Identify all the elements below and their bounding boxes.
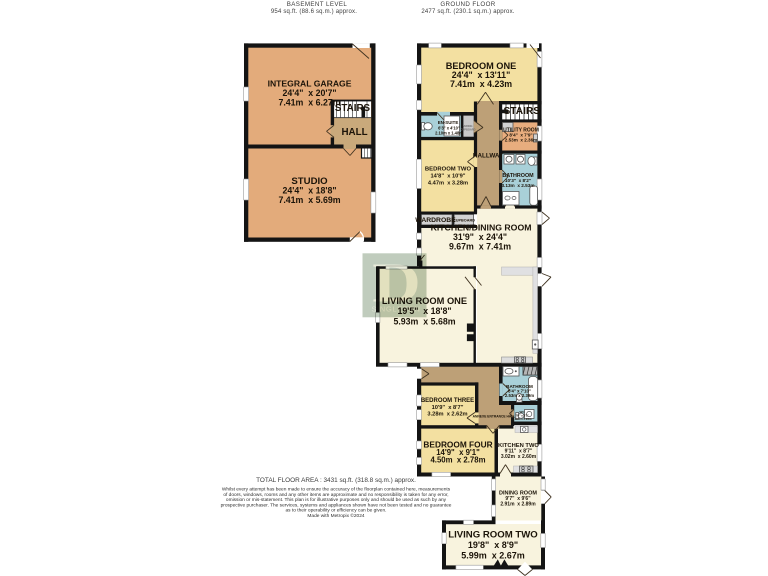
- svg-text:STAIRS: STAIRS: [335, 103, 371, 114]
- svg-text:3.13m x 2.53m: 3.13m x 2.53m: [501, 183, 534, 188]
- svg-text:HALLWAY: HALLWAY: [473, 153, 504, 160]
- svg-text:3.02m x 2.60m: 3.02m x 2.60m: [501, 454, 537, 460]
- svg-text:CUPBOARD: CUPBOARD: [461, 128, 476, 132]
- svg-text:31'9" x 24'4": 31'9" x 24'4": [453, 232, 507, 242]
- svg-text:14'8" x 10'9": 14'8" x 10'9": [431, 173, 466, 179]
- svg-text:STAIRS: STAIRS: [503, 106, 540, 117]
- svg-text:AIRING: AIRING: [463, 124, 472, 128]
- svg-text:19'8" x 8'9": 19'8" x 8'9": [468, 540, 518, 550]
- svg-text:3.28m x 2.62m: 3.28m x 2.62m: [427, 412, 467, 418]
- svg-text:5.99m x 2.67m: 5.99m x 2.67m: [461, 551, 525, 561]
- svg-text:BEDROOM THREE: BEDROOM THREE: [421, 398, 474, 404]
- svg-text:TOTAL FLOOR AREA : 3431 sq.ft.: TOTAL FLOOR AREA : 3431 sq.ft. (318.8 sq…: [256, 477, 416, 484]
- svg-text:10'9" x 8'7": 10'9" x 8'7": [432, 405, 464, 411]
- svg-text:2477 sq.ft. (230.1 sq.m.) appr: 2477 sq.ft. (230.1 sq.m.) approx.: [421, 9, 514, 15]
- svg-text:2.36m x 0.94m: 2.36m x 0.94m: [513, 417, 532, 421]
- svg-text:LIVING ROOM TWO: LIVING ROOM TWO: [448, 530, 538, 541]
- svg-text:Made with Metropix ©2024: Made with Metropix ©2024: [307, 512, 364, 519]
- svg-text:4.50m x 2.78m: 4.50m x 2.78m: [430, 456, 485, 465]
- svg-text:2.53m x 2.36m: 2.53m x 2.36m: [505, 138, 537, 143]
- svg-text:prospective purchaser. The ser: prospective purchaser. The services, sys…: [221, 502, 452, 508]
- svg-text:24'4" x 20'7": 24'4" x 20'7": [282, 88, 336, 98]
- svg-text:SINGLETON: SINGLETON: [371, 305, 420, 314]
- svg-text:7.41m x 6.27m: 7.41m x 6.27m: [278, 98, 340, 108]
- svg-text:HALL: HALL: [341, 127, 367, 138]
- svg-text:7.41m x 5.69m: 7.41m x 5.69m: [278, 195, 340, 205]
- svg-text:BEDROOM TWO: BEDROOM TWO: [425, 167, 472, 173]
- svg-text:24'4" x 18'8": 24'4" x 18'8": [282, 186, 336, 196]
- svg-text:as to their operability or eff: as to their operability or efficiency ca…: [286, 508, 387, 514]
- svg-text:BASEMENT LEVEL: BASEMENT LEVEL: [287, 1, 348, 8]
- svg-text:2.10m x 1.48m: 2.10m x 1.48m: [435, 130, 463, 135]
- svg-text:INTEGRAL GARAGE: INTEGRAL GARAGE: [268, 79, 352, 89]
- svg-text:omission or mis-statement. Thi: omission or mis-statement. This plan is …: [226, 497, 447, 503]
- svg-text:2.91m x 2.89m: 2.91m x 2.89m: [500, 501, 536, 507]
- svg-text:Whilst every attempt has been: Whilst every attempt has been made to en…: [222, 487, 451, 493]
- svg-text:GROUND FLOOR: GROUND FLOOR: [440, 1, 495, 8]
- svg-text:2.53m x 2.39m: 2.53m x 2.39m: [505, 393, 534, 398]
- svg-text:5.93m x 5.68m: 5.93m x 5.68m: [393, 317, 455, 327]
- svg-text:ANNEXE ENTRANCE HALL: ANNEXE ENTRANCE HALL: [473, 415, 516, 419]
- svg-text:7.41m x 4.23m: 7.41m x 4.23m: [450, 79, 512, 89]
- svg-text:9.67m x 7.41m: 9.67m x 7.41m: [449, 241, 511, 251]
- svg-text:of doors, windows, rooms and a: of doors, windows, rooms and any other i…: [223, 492, 448, 498]
- svg-text:954 sq.ft. (88.6 sq.m.) approx: 954 sq.ft. (88.6 sq.m.) approx.: [271, 9, 357, 15]
- svg-text:4.47m x 3.28m: 4.47m x 3.28m: [428, 180, 468, 186]
